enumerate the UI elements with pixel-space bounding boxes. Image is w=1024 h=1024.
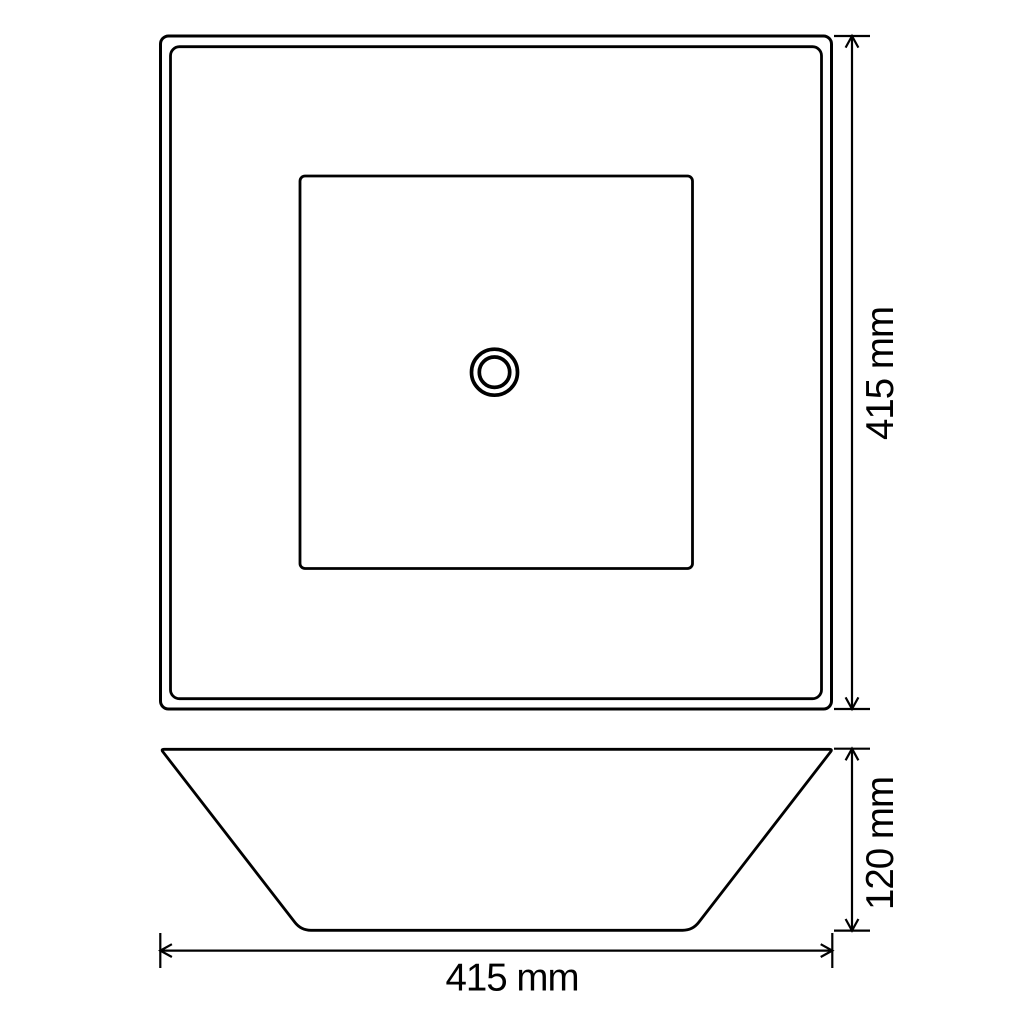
svg-text:415 mm: 415 mm <box>445 957 578 1000</box>
svg-text:120 mm: 120 mm <box>859 777 902 910</box>
svg-text:415 mm: 415 mm <box>859 307 902 440</box>
